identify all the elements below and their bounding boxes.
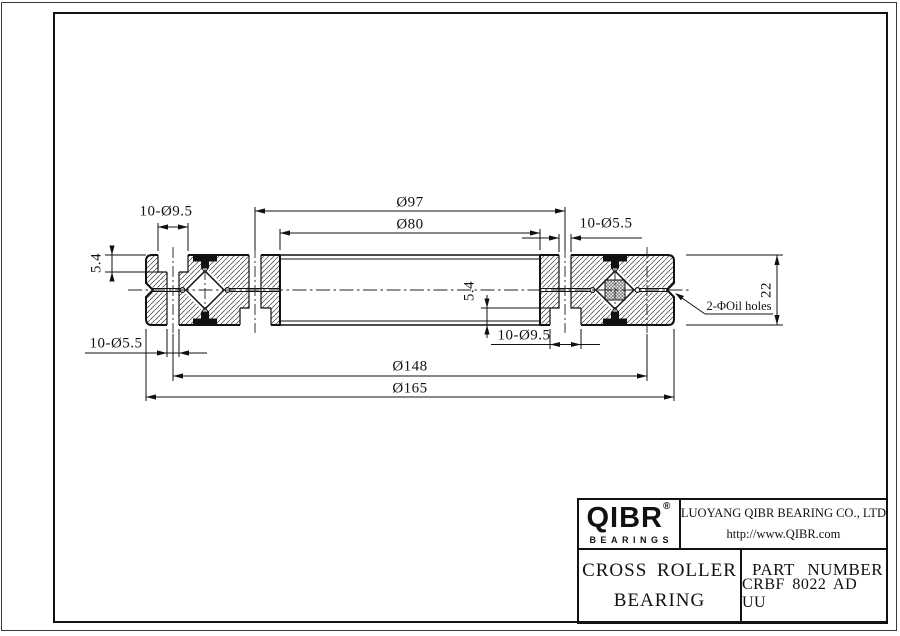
- dim-outer-bolt-circle: Ø148: [392, 360, 427, 375]
- dim-counterbore-depth-mid: 5.4: [463, 281, 478, 301]
- logo-cell: QIBR® BEARINGS: [579, 500, 681, 548]
- dim-ring-width: 22: [760, 282, 775, 298]
- company-cell: LUOYANG QIBR BEARING CO., LTD http://www…: [681, 500, 886, 548]
- left-ring-section: [146, 247, 280, 333]
- qibr-logo: QIBR®: [587, 504, 672, 533]
- dim-outer-diameter: Ø165: [392, 382, 427, 397]
- part-number-cell: PART NUMBER CRBF 8022 AD UU: [742, 550, 886, 622]
- product-name-line2: BEARING: [614, 590, 705, 612]
- dim-counterbore-bottom-mid: 10-Ø9.5: [497, 329, 550, 344]
- title-block-detail-row: CROSS ROLLER BEARING PART NUMBER CRBF 80…: [579, 550, 886, 622]
- dim-bore-diameter: Ø80: [396, 218, 423, 233]
- dim-through-hole-bottom-left: 10-Ø5.5: [89, 337, 142, 352]
- dim-through-hole-top-right: 10-Ø5.5: [579, 217, 632, 232]
- logo-subtitle: BEARINGS: [585, 535, 673, 545]
- dim-inner-bolt-circle: Ø97: [396, 196, 423, 211]
- dim-counterbore-top-left: 10-Ø9.5: [139, 205, 192, 220]
- title-block: QIBR® BEARINGS LUOYANG QIBR BEARING CO.,…: [577, 498, 888, 624]
- company-website: http://www.QIBR.com: [727, 527, 841, 542]
- oil-holes-note: 2-ΦOil holes: [706, 300, 771, 313]
- company-name: LUOYANG QIBR BEARING CO., LTD: [681, 506, 886, 521]
- product-name-line1: CROSS ROLLER: [582, 560, 737, 582]
- logo-text: QIBR: [587, 502, 664, 534]
- product-name-cell: CROSS ROLLER BEARING: [579, 550, 742, 622]
- part-number-value: CRBF 8022 AD UU: [742, 576, 878, 612]
- title-block-header-row: QIBR® BEARINGS LUOYANG QIBR BEARING CO.,…: [579, 500, 886, 550]
- drawing-sheet: Ø97 Ø80 10-Ø9.5 10-Ø5.5 10-Ø5.5 10-Ø9.5 …: [0, 0, 900, 636]
- registered-mark: ®: [663, 501, 671, 512]
- dim-counterbore-depth-left: 5.4: [90, 253, 105, 273]
